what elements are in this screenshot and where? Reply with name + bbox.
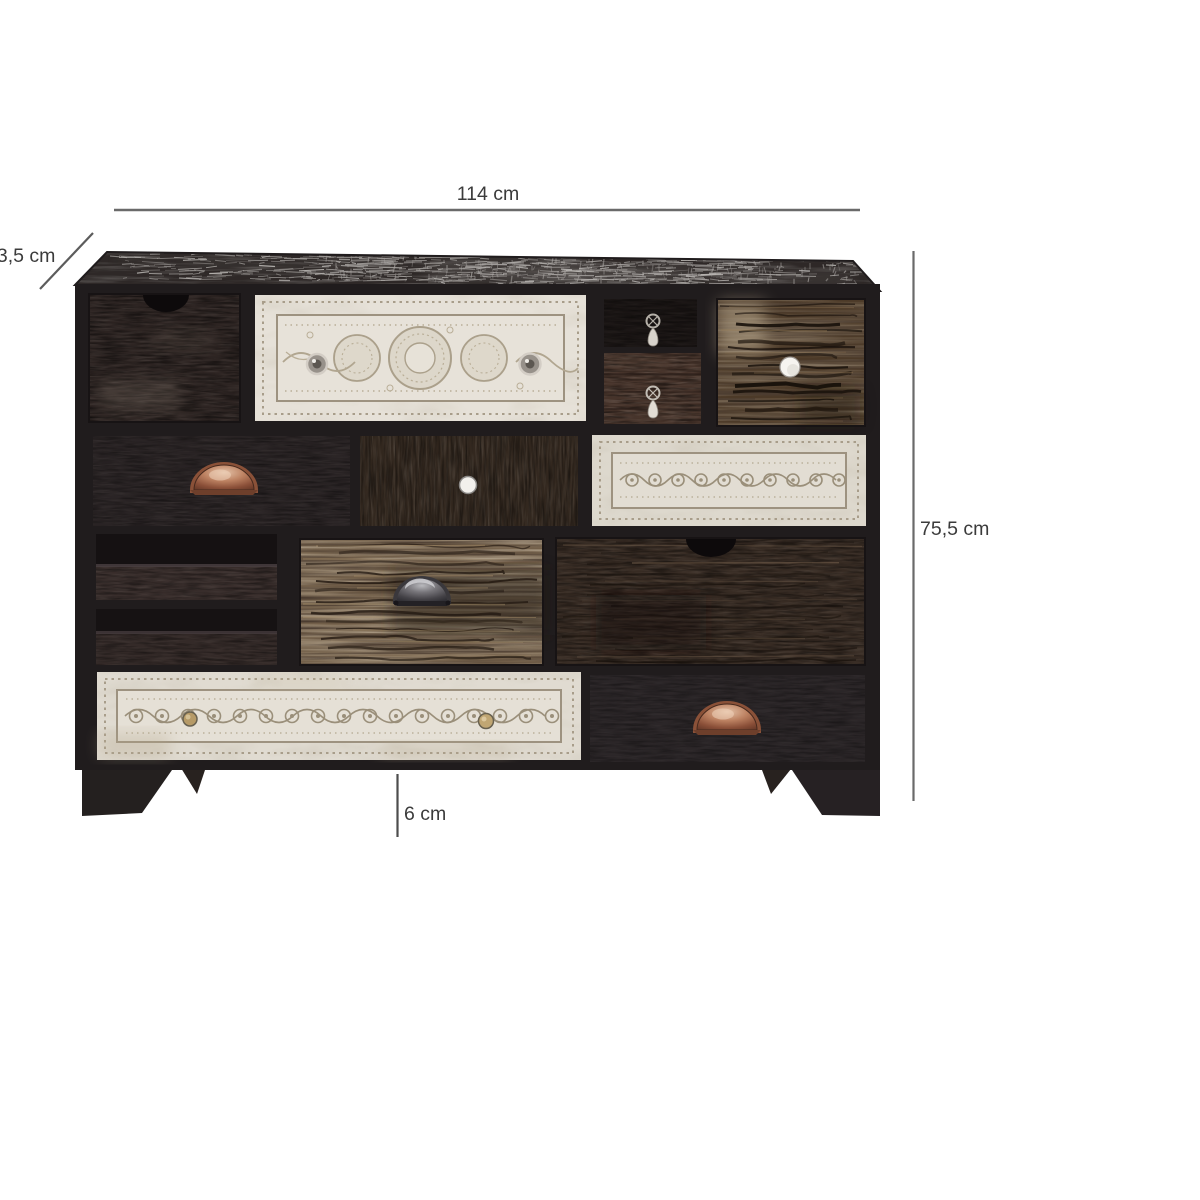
svg-text:114 cm: 114 cm (457, 183, 520, 205)
svg-text:75,5 cm: 75,5 cm (920, 518, 989, 540)
svg-text:33,5 cm: 33,5 cm (0, 245, 55, 267)
svg-text:6 cm: 6 cm (404, 803, 446, 825)
